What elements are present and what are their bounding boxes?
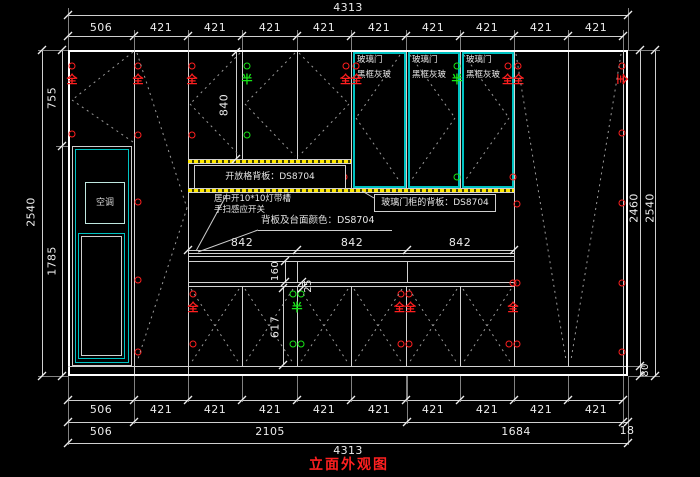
door-swing-and-ticks	[0, 0, 700, 477]
cabinet-elevation-drawing: 5064214214214214214214214214215064214214…	[0, 0, 700, 477]
